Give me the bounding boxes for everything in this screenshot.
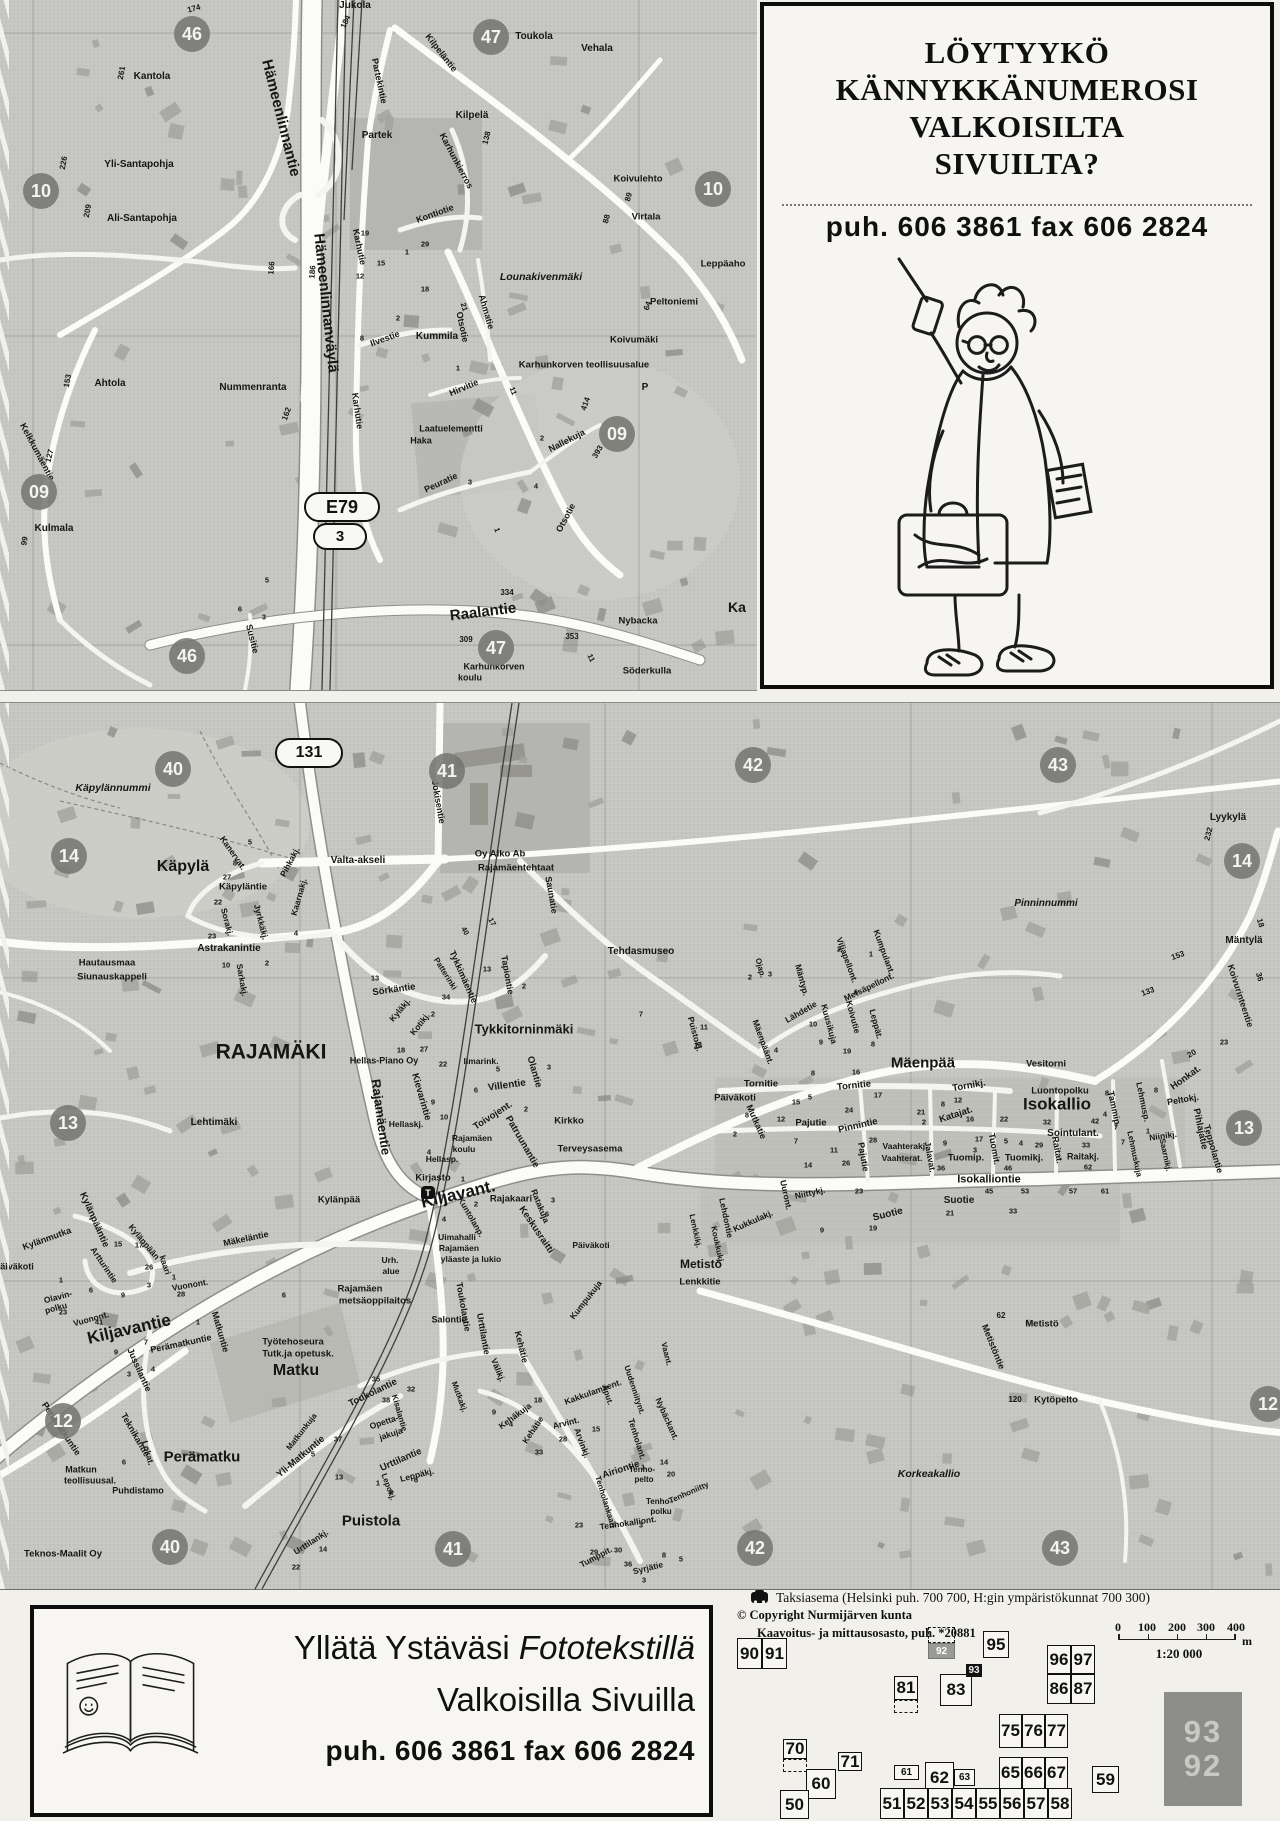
- map-label: Mäenpäänt.: [751, 1019, 775, 1066]
- map-label: 2: [540, 434, 544, 442]
- page-index-box-96: 96: [1047, 1645, 1071, 1674]
- page-index-box-75: 75: [999, 1714, 1022, 1748]
- map-label: Ka: [728, 600, 746, 614]
- map-label: Hämeenlinnantie: [259, 58, 303, 178]
- page-index-box-53: 53: [928, 1788, 952, 1819]
- map-label: yläaste ja lukio: [441, 1255, 501, 1264]
- map-label: 9: [492, 1408, 496, 1416]
- map-label: 15: [792, 1098, 800, 1106]
- page-index-box: [894, 1700, 918, 1713]
- map-label: Matkun: [65, 1466, 97, 1475]
- map-label: 33: [535, 1448, 543, 1456]
- map-label: Kontiotie: [415, 203, 455, 225]
- map-label: Kilpeläntie: [423, 32, 458, 73]
- map-label: Tornitie: [837, 1079, 872, 1092]
- map-label: Jukola: [339, 1, 371, 11]
- map-label: Mäenpää: [891, 1056, 955, 1071]
- page-index-box-81: 81: [894, 1676, 918, 1700]
- map-label: 17: [874, 1091, 882, 1099]
- map-label: Puistola: [342, 1514, 400, 1529]
- grid-ref-circle: 40: [152, 1529, 188, 1565]
- map-label: 22: [292, 1563, 300, 1571]
- map-label: Terveysasema: [558, 1144, 623, 1154]
- book-left-page: [67, 1654, 130, 1743]
- map-label: Susitie: [244, 624, 260, 655]
- map-label: Kylänmutka: [21, 1226, 72, 1252]
- map-label: Uudenniitynt.: [622, 1364, 645, 1415]
- map-label: Kumpulant.: [872, 929, 896, 976]
- map-label: 1: [1146, 1127, 1150, 1135]
- map-label: 23: [855, 1187, 863, 1195]
- map-label: Mäntyp.: [794, 963, 811, 996]
- map-label: Jyrkkäkj.: [252, 903, 269, 940]
- map-label: 29: [590, 1548, 598, 1556]
- map-label: Nybacka: [618, 616, 657, 626]
- map-label: Ojap.: [754, 957, 767, 978]
- map-label: 8: [745, 1111, 749, 1119]
- page-index-box-71: 71: [838, 1752, 862, 1771]
- grid-ref-circle: 40: [155, 751, 191, 787]
- map-label: 3: [262, 613, 266, 621]
- map-label: Raitakj.: [1067, 1153, 1099, 1162]
- map-label: 166: [267, 261, 276, 275]
- map-label: Tenhoniitty: [668, 1481, 710, 1506]
- map-label: 53: [1021, 1187, 1029, 1195]
- grid-ref-circle: 10: [23, 173, 59, 209]
- map-label: Raalantie: [449, 600, 517, 623]
- map-label: Päiväkoti: [572, 1241, 609, 1250]
- map-label: 22: [1000, 1115, 1008, 1123]
- page-index-box-61: 61: [894, 1765, 919, 1780]
- map-label: Yli-Santapohja: [104, 160, 173, 170]
- map-label: Kukkulakj.: [732, 1208, 774, 1233]
- page-index-box-66: 66: [1022, 1757, 1045, 1789]
- map-label: 4: [534, 482, 538, 490]
- map-label: Nybäckant.: [654, 1397, 680, 1442]
- page-index-box-59: 59: [1092, 1766, 1119, 1793]
- map-label: Oy Alko Ab: [475, 849, 526, 859]
- map-label: 29: [421, 240, 429, 248]
- phonebook-map-page: { "phone_ad":{ "line1":"LÖYTYYKÖ","line2…: [0, 0, 1280, 1821]
- book-right-page: [131, 1654, 194, 1743]
- map-label: Ilvestie: [369, 330, 401, 349]
- map-label: 6: [854, 988, 858, 996]
- page-index-box-60: 60: [806, 1769, 836, 1799]
- map-label: Mutkatie: [744, 1103, 767, 1140]
- map-label: 29: [1035, 1141, 1043, 1149]
- map-label: 1: [376, 1479, 380, 1487]
- map-label: Käpylä: [157, 859, 209, 875]
- map-label: 1: [196, 1318, 200, 1326]
- map-label: 8: [1154, 1086, 1158, 1094]
- map-label: Tuomit.: [987, 1133, 1001, 1166]
- map-label: Otsotie: [555, 502, 578, 534]
- map-label: Partek: [362, 131, 393, 141]
- map-label: 16: [852, 1068, 860, 1076]
- map-label: Matkuntie: [210, 1311, 230, 1354]
- grid-ref-circle: 14: [51, 838, 87, 874]
- map-label: Rajamäentehtaat: [478, 863, 554, 873]
- map-label: Rajamäentie: [369, 1078, 393, 1156]
- map-label: 28: [869, 1136, 877, 1144]
- page-index-box-97: 97: [1071, 1645, 1095, 1674]
- map-label: 3: [639, 1521, 643, 1529]
- map-label: 37: [334, 1435, 342, 1443]
- map-label: Kievarintie: [410, 1072, 433, 1121]
- map-label: Leppäaho: [701, 259, 746, 269]
- map-label: Pajutie: [795, 1118, 826, 1128]
- map-label: Syrjätie: [632, 1560, 664, 1576]
- map-label: Sarkakj.: [235, 963, 249, 997]
- page-index-box-51: 51: [880, 1788, 904, 1819]
- map-label: Astrakanintie: [197, 944, 260, 954]
- map-label: Nallekuja: [547, 428, 586, 454]
- map-label: Valta-akseli: [331, 856, 385, 866]
- map-label: Kehäkuja: [497, 1401, 533, 1430]
- phone-ad-line1: LÖYTYYKÖ: [764, 34, 1270, 71]
- map-label: 393: [591, 444, 605, 460]
- map-label: teollisuusal.: [64, 1477, 116, 1486]
- map-label: 4: [774, 1046, 778, 1054]
- map-label: 2: [396, 314, 400, 322]
- map-label: Peuratie: [423, 471, 459, 494]
- page-index-box-95: 95: [983, 1631, 1009, 1658]
- route-shield: 131: [275, 738, 343, 768]
- phone-ad-line2: KÄNNYKKÄNUMEROSI: [764, 71, 1270, 108]
- page-index-box-67: 67: [1045, 1757, 1068, 1789]
- map-label: 9: [820, 1226, 824, 1234]
- map-label: Tapiontie: [499, 955, 515, 995]
- map-label: RAJAMÄKI: [216, 1042, 327, 1063]
- map-label: Koivumäki: [610, 335, 658, 345]
- map-label: P: [642, 383, 649, 393]
- cartoon-man-with-phone-illustration: [839, 251, 1179, 681]
- map-label: Tutk.ja opetusk.: [262, 1349, 334, 1359]
- map-label: 32: [407, 1385, 415, 1393]
- doodle-face: [80, 1697, 97, 1714]
- page-number-bottom: 92: [1184, 1749, 1222, 1783]
- map-label: 10: [440, 1113, 448, 1121]
- map-label: Metistöntie: [980, 1323, 1006, 1370]
- map-label: 6: [122, 1458, 126, 1466]
- map-label: 1: [869, 950, 873, 958]
- map-label: 17: [487, 917, 498, 928]
- map-label: Kylänpää: [318, 1195, 360, 1205]
- map-label: 9: [114, 1348, 118, 1356]
- page-index-box-86: 86: [1047, 1674, 1071, 1704]
- map-label: 7: [144, 1338, 148, 1346]
- map-label: Keskusraitti: [517, 1205, 555, 1255]
- map-label: 3: [642, 1576, 646, 1584]
- grid-ref-circle: 43: [1042, 1530, 1078, 1566]
- map-label: Kylänpääntie: [78, 1191, 111, 1249]
- map-label: 8: [941, 1100, 945, 1108]
- map-label: 40: [460, 926, 471, 937]
- map-label: Lehmusp.: [1135, 1081, 1152, 1122]
- photo-ad-line3: puh. 606 3861 fax 606 2824: [229, 1735, 695, 1767]
- page-index-box-57: 57: [1024, 1788, 1048, 1819]
- map-label: 4: [1019, 1139, 1023, 1147]
- map-label: 15: [377, 259, 385, 267]
- map-label: Lyykylä: [1210, 813, 1246, 823]
- page-index-box-65: 65: [999, 1757, 1022, 1789]
- map-label: 14: [660, 1458, 668, 1466]
- map-label: Metistö: [1025, 1319, 1058, 1329]
- map-label: 209: [83, 204, 93, 219]
- page-index-box-55: 55: [976, 1788, 1000, 1819]
- map-label: 28: [177, 1290, 185, 1298]
- map-label: Vesitorni: [1026, 1059, 1066, 1069]
- map-label: 16: [966, 1115, 974, 1123]
- map-label: 21: [946, 1209, 954, 1217]
- map-label: Kytöpelto: [1034, 1395, 1078, 1405]
- map-label: 46: [1004, 1164, 1012, 1172]
- map-label: Käpylännummi: [75, 783, 150, 794]
- map-label: 30: [614, 1546, 622, 1554]
- map-label: 99: [20, 536, 29, 546]
- map-label: 3: [147, 1281, 151, 1289]
- map-label: metsäoppilaitos: [339, 1296, 411, 1306]
- map-label: 23: [575, 1521, 583, 1529]
- map-label: Haka: [410, 437, 432, 446]
- map-label: Metistö: [680, 1258, 722, 1270]
- map-label: 8: [1105, 1089, 1109, 1097]
- shoe: [925, 650, 982, 675]
- big-map-panel: KäpylännummiKäpyläKanervat.58Pihkakj.Käp…: [0, 702, 1280, 1590]
- map-label: 42: [1091, 1117, 1099, 1125]
- map-label: 18: [421, 285, 429, 293]
- grid-ref-circle: 09: [599, 416, 635, 452]
- map-label: 1: [456, 364, 460, 372]
- map-label: 19: [843, 1047, 851, 1055]
- map-label: 138: [481, 131, 492, 146]
- map-label: Tornikj.: [952, 1078, 987, 1093]
- map-label: 3: [547, 1063, 551, 1071]
- map-label: Toukola: [515, 32, 553, 42]
- map-label: 28: [559, 1435, 567, 1443]
- grid-ref-circle: 47: [478, 630, 514, 666]
- map-label: Koivulehto: [613, 174, 662, 184]
- glasses-icon: [969, 337, 986, 354]
- map-label: 18: [534, 1396, 542, 1404]
- copyright-line1: © Copyright Nurmijärven kunta: [737, 1608, 912, 1623]
- map-label: 9: [121, 1291, 125, 1299]
- taxi-station-icon: T: [421, 1186, 435, 1199]
- map-label: Hellaskj.: [389, 1120, 424, 1129]
- copyright-municipality: Nurmijärven kunta: [807, 1608, 912, 1622]
- map-label: Suotie: [944, 1196, 975, 1206]
- torn-paper-edge: [0, 703, 9, 1589]
- map-label: 22: [439, 1060, 447, 1068]
- map-label: Lenkkitie: [679, 1277, 720, 1287]
- map-label: 261: [117, 66, 127, 81]
- map-label: 6: [89, 1286, 93, 1294]
- map-label: 2: [922, 1118, 926, 1126]
- map-label: Vaahterat.: [882, 1154, 923, 1163]
- map-label: 2: [522, 982, 526, 990]
- map-label: 20: [667, 1470, 675, 1478]
- map-label: Leppät.: [868, 1008, 884, 1039]
- map-label: 89: [624, 192, 634, 203]
- map-label: 17: [975, 1135, 983, 1143]
- map-label: 5: [496, 1065, 500, 1073]
- map-label: Niittykj.: [794, 1186, 826, 1201]
- scale-tick: 200: [1168, 1620, 1186, 1635]
- map-label: 8: [871, 1040, 875, 1048]
- map-label: Kilpelä: [456, 111, 489, 121]
- map-label: Peltokj.: [1166, 1093, 1199, 1107]
- map-label: 18: [1255, 918, 1265, 929]
- map-label: Saunatie: [543, 876, 558, 915]
- map-label: Sörkäntie: [372, 982, 416, 997]
- map-label: Teknos-Maalit Oy: [24, 1549, 102, 1559]
- map-label: Nummenranta: [219, 383, 286, 393]
- map-label: Saarnikj.: [1158, 1138, 1173, 1172]
- map-label: Uimahalli: [438, 1233, 476, 1242]
- grid-ref-circle: 12: [45, 1403, 81, 1439]
- map-label: 174: [187, 3, 202, 14]
- map-label: 8: [389, 1488, 393, 1496]
- map-label: 23: [1220, 1038, 1228, 1046]
- map-label: 10: [222, 961, 230, 969]
- map-label: Koivutie: [845, 1000, 862, 1035]
- map-label: 7: [1114, 1123, 1118, 1131]
- map-label: 1: [59, 1276, 63, 1284]
- open-book-illustration: [48, 1623, 213, 1801]
- top-map-labels: Jukola174184ToukolaVehalaKantola261Kilpe…: [0, 0, 757, 690]
- map-label: 5: [1004, 1137, 1008, 1145]
- scale-tick: 0: [1115, 1620, 1121, 1635]
- map-label: Isokallio: [1023, 1096, 1091, 1113]
- map-label: polku: [650, 1508, 671, 1516]
- map-label: 15: [114, 1240, 122, 1248]
- big-map-labels: KäpylännummiKäpyläKanervat.58Pihkakj.Käp…: [0, 703, 1280, 1589]
- map-label: Hellasp.: [426, 1155, 459, 1164]
- map-label: 14: [694, 1041, 702, 1049]
- map-label: 4: [442, 1215, 446, 1223]
- map-label: Kirkko: [554, 1116, 584, 1126]
- map-label: 4: [294, 929, 298, 937]
- phone-ad: LÖYTYYKÖ KÄNNYKKÄNUMEROSI VALKOISILTA SI…: [760, 2, 1274, 689]
- map-label: Ahmatie: [477, 294, 495, 331]
- map-label: Pihkakj.: [279, 846, 302, 878]
- map-label: Rajakaari: [490, 1194, 532, 1204]
- map-label: Hellas-Piano Oy: [350, 1057, 419, 1066]
- map-label: 353: [565, 633, 578, 641]
- scale-ticks: 0 100 200 300 400: [1106, 1620, 1272, 1634]
- map-label: 62: [1084, 1163, 1092, 1171]
- map-label: Peltoniemi: [650, 297, 698, 307]
- grid-ref-circle: 42: [737, 1530, 773, 1566]
- phone-ad-line3: VALKOISILTA: [764, 108, 1270, 145]
- map-label: 18: [397, 1046, 405, 1054]
- map-label: 5: [808, 1093, 812, 1101]
- map-label: Kotikj.: [409, 1011, 432, 1037]
- map-label: 5: [265, 576, 269, 584]
- map-label: Laatuelementti: [419, 425, 483, 434]
- map-label: 11: [700, 1023, 708, 1031]
- map-label: 8: [360, 334, 364, 342]
- scale-tick: 100: [1138, 1620, 1156, 1635]
- map-label: 3: [768, 970, 772, 978]
- map-label: Mäntylä: [1225, 936, 1262, 946]
- map-label: 2: [748, 973, 752, 981]
- map-label: Jalavat.: [923, 1141, 937, 1173]
- page-index-box-63: 63: [954, 1769, 975, 1786]
- map-label: Villentie: [487, 1078, 526, 1093]
- map-label: Isokalliontie: [957, 1175, 1021, 1186]
- grid-ref-circle: 13: [50, 1105, 86, 1141]
- map-label: 2: [733, 1130, 737, 1138]
- page-index-box: [783, 1759, 807, 1772]
- map-label: 13: [483, 965, 491, 973]
- map-label: 2: [265, 959, 269, 967]
- map-label: Honkat.: [1169, 1064, 1203, 1092]
- map-label: 1: [641, 1463, 645, 1471]
- map-label: 1: [493, 527, 501, 533]
- photo-ad-text: Yllätä Ystäväsi Fototekstillä Valkoisill…: [229, 1629, 695, 1767]
- map-label: Lenkkikj.: [688, 1213, 703, 1248]
- route-shield: 3: [313, 523, 367, 550]
- map-label: Rajamäen: [439, 1244, 479, 1253]
- map-label: Tykkitorninmäki: [475, 1023, 574, 1036]
- corner-page-numbers: 93 92: [1164, 1692, 1242, 1806]
- map-label: Korkeakallio: [898, 1469, 960, 1480]
- grid-ref-circle: 13: [1226, 1110, 1262, 1146]
- map-label: 34: [442, 993, 450, 1001]
- map-label: 27: [223, 873, 231, 881]
- map-label: 62: [997, 1312, 1006, 1320]
- map-label: Artturintie: [89, 1246, 119, 1285]
- map-label: Työtehoseura: [262, 1337, 324, 1347]
- grid-ref-circle: 41: [435, 1531, 471, 1567]
- map-label: Söderkulla: [623, 666, 672, 676]
- page-index-box-93: 93: [966, 1664, 982, 1677]
- page-index-box-76: 76: [1022, 1714, 1045, 1748]
- map-label: Toukolantie: [454, 1282, 472, 1333]
- map-label: 11: [508, 386, 518, 396]
- map-label: 17: [135, 1241, 143, 1249]
- map-label: 2: [837, 945, 841, 953]
- map-label: Lehtimäki: [191, 1118, 238, 1128]
- map-label: 414: [580, 396, 592, 411]
- map-label: Karhunkorven teollisuusalue: [519, 360, 649, 370]
- map-label: 26: [842, 1159, 850, 1167]
- map-label: 4: [1103, 1110, 1107, 1118]
- map-label: Olantie: [525, 1055, 543, 1089]
- page-index-box-54: 54: [952, 1788, 976, 1819]
- map-label: Mutkakj.: [450, 1381, 468, 1414]
- map-label: Käpyläntie: [219, 882, 267, 892]
- newspaper-icon: [1047, 464, 1091, 518]
- page-index-box-56: 56: [1000, 1788, 1024, 1819]
- phone-ad-phone: puh. 606 3861 fax 606 2824: [764, 211, 1270, 243]
- scale-ratio: 1:20 000: [1124, 1646, 1234, 1662]
- map-label: Kehätie: [513, 1330, 530, 1364]
- photo-ad-line1-normal: Yllätä Ystäväsi: [294, 1629, 519, 1666]
- grid-ref-circle: 09: [21, 474, 57, 510]
- map-label: 11: [586, 653, 596, 663]
- map-label: Vaahterakj.: [883, 1142, 928, 1151]
- scale-bar: 0 100 200 300 400 m 1:20 000: [1106, 1620, 1272, 1668]
- coat: [924, 367, 1050, 567]
- map-label: 15: [592, 1425, 600, 1433]
- map-label: pelto: [634, 1476, 653, 1484]
- map-label: Kumpukuja: [568, 1279, 603, 1321]
- copyright-symbol: ©: [737, 1608, 746, 1622]
- map-label: Uuront.: [779, 1179, 794, 1210]
- grid-ref-circle: 12: [1250, 1386, 1280, 1422]
